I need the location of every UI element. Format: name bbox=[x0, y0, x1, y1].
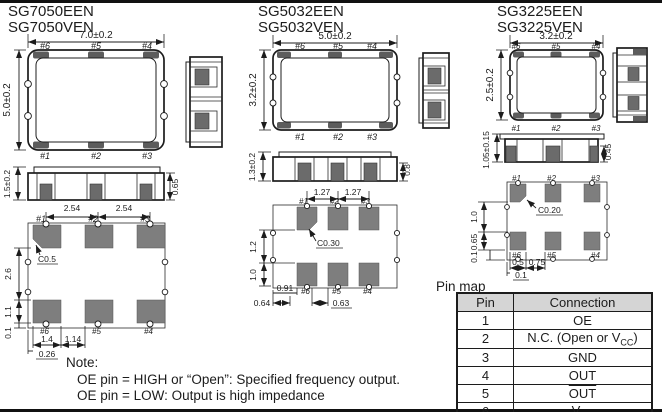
pin-cell: 3 bbox=[457, 348, 514, 366]
pin-cell: 5 bbox=[457, 384, 514, 402]
table-row: 6 VCC bbox=[457, 402, 652, 412]
sg7050-land-pattern: 2.54 2.54 #1 #2 #3 C0.5 2.6 1.1 0 bbox=[3, 203, 168, 359]
pad-label: #2 bbox=[333, 132, 343, 142]
pin-cell: 1 bbox=[457, 312, 514, 330]
pad-label: #5 bbox=[547, 251, 556, 260]
sg7050-front-view: 1.5±0.2 0.65 bbox=[2, 167, 180, 200]
dim-bottom: 0.63 bbox=[333, 298, 350, 308]
dim-pad-height: 0.45 bbox=[603, 143, 613, 160]
dim-left: 1.0 bbox=[248, 269, 258, 281]
pin-cell: 6 bbox=[457, 402, 514, 412]
dim-seated-height: 1.05±0.15 bbox=[481, 131, 491, 169]
sg3225-top-view: 3.2±0.2 #6 #5 #4 #1 #2 #3 2.5±0.2 bbox=[485, 31, 606, 133]
pin-map-table: Pin Connection 1 OE 2 N.C. (Open or VCC)… bbox=[456, 292, 653, 412]
sg5032-land-pattern: 1.27 1.27 #1 #2 #3 C0.30 1.2 1.0 #6 bbox=[248, 187, 400, 308]
pad-label: #1 bbox=[40, 151, 50, 161]
dim-height: 3.2±0.2 bbox=[248, 73, 259, 107]
table-row: 4 OUT bbox=[457, 366, 652, 384]
connection-cell: OUT bbox=[514, 366, 653, 384]
sg3225-front-view: 1.05±0.15 0.45 bbox=[481, 131, 613, 169]
connection-cell: OUT bbox=[514, 384, 653, 402]
connection-cell: VCC bbox=[514, 402, 653, 412]
pad-label: #3 bbox=[367, 132, 377, 142]
dim-bottom: 1.4 bbox=[41, 334, 53, 344]
table-row: 1 OE bbox=[457, 312, 652, 330]
connection-cell: N.C. (Open or VCC) bbox=[514, 330, 653, 349]
note-label: Note: bbox=[66, 355, 400, 372]
note-line: OE pin = HIGH or “Open”: Specified frequ… bbox=[66, 372, 400, 389]
dim-bottom: 1.14 bbox=[65, 334, 82, 344]
dim-seated-height: 1.5±0.2 bbox=[2, 170, 12, 199]
sg5032-front-view: 1.3±0.2 0.8 bbox=[247, 152, 412, 181]
dim-left: 0.65 bbox=[469, 233, 479, 250]
dim-pitch: 2.54 bbox=[116, 203, 133, 213]
dim-pad-height: 0.65 bbox=[170, 178, 180, 195]
dim-left: 1.0 bbox=[469, 211, 479, 223]
dim-pitch: 2.54 bbox=[64, 203, 81, 213]
dim-height: 2.5±0.2 bbox=[485, 68, 496, 102]
dim-bottom: 0.64 bbox=[254, 298, 271, 308]
dim-left: 2.6 bbox=[3, 268, 13, 280]
pad-label: #1 bbox=[295, 132, 305, 142]
table-row: 5 OUT bbox=[457, 384, 652, 402]
pin-cell: 4 bbox=[457, 366, 514, 384]
dim-bottom: 0.26 bbox=[39, 349, 56, 359]
pin-header: Pin bbox=[457, 293, 514, 312]
dim-pad-height: 0.8 bbox=[402, 164, 412, 176]
pad-label: #4 bbox=[363, 287, 372, 296]
sg7050-end-view bbox=[186, 57, 222, 147]
note-line: OE pin = LOW: Output is high impedance bbox=[66, 388, 400, 405]
pad-label: #3 bbox=[142, 151, 152, 161]
sg3225-land-pattern: #1 #2 #3 C0.20 1.0 0.65 0.1 #6 #5 bbox=[469, 174, 609, 280]
pad-label: #4 bbox=[144, 327, 153, 336]
dim-chamfer: C0.30 bbox=[317, 238, 340, 248]
sg5032-top-view: 5.0±0.2 #6 #5 #4 #1 #2 #3 3.2±0.2 bbox=[248, 31, 400, 142]
connection-cell: OE bbox=[514, 312, 653, 330]
pad-label: #5 bbox=[92, 327, 101, 336]
dim-left: 1.1 bbox=[3, 306, 13, 318]
pad-label: #1 bbox=[512, 124, 521, 133]
table-row: 2 N.C. (Open or VCC) bbox=[457, 330, 652, 349]
dim-pitch: 1.27 bbox=[345, 187, 362, 197]
pad-label: #5 bbox=[332, 287, 341, 296]
connection-cell: GND bbox=[514, 348, 653, 366]
dim-left: 0.1 bbox=[3, 327, 13, 339]
dim-bottom: 0.91 bbox=[277, 283, 294, 293]
sg5032-end-view bbox=[419, 53, 449, 128]
note-block: Note: OE pin = HIGH or “Open”: Specified… bbox=[66, 355, 400, 405]
dim-bottom: 0.75 bbox=[529, 257, 546, 267]
table-row: 3 GND bbox=[457, 348, 652, 366]
datasheet-page: SG7050EEN SG7050VEN SG5032EEN SG5032VEN … bbox=[0, 0, 662, 412]
dim-seated-height: 1.3±0.2 bbox=[247, 153, 257, 182]
pad-label: #6 bbox=[301, 287, 310, 296]
dim-chamfer: C0.5 bbox=[38, 254, 56, 264]
pad-label: #2 bbox=[91, 151, 101, 161]
dim-pitch: 1.27 bbox=[314, 187, 331, 197]
dim-width: 7.0±0.2 bbox=[79, 30, 113, 41]
pin-cell: 2 bbox=[457, 330, 514, 349]
pad-label: #2 bbox=[552, 124, 561, 133]
dim-bottom: 0.5 bbox=[512, 257, 524, 267]
dim-height: 5.0±0.2 bbox=[2, 83, 13, 117]
dim-bottom: 0.1 bbox=[515, 270, 527, 280]
dim-left: 1.2 bbox=[248, 241, 258, 253]
connection-header: Connection bbox=[514, 293, 653, 312]
dim-width: 3.2±0.2 bbox=[539, 31, 573, 42]
sg7050-top-view: 7.0±0.2 #6 #5 #4 #1 #2 #3 5.0±0.2 bbox=[2, 30, 167, 161]
pad-label: #3 bbox=[592, 124, 601, 133]
pad-label: #4 bbox=[591, 251, 600, 260]
dim-left: 0.1 bbox=[469, 251, 479, 263]
sg3225-end-view bbox=[613, 48, 647, 122]
pin-map-header-row: Pin Connection bbox=[457, 293, 652, 312]
dim-chamfer: C0.20 bbox=[538, 205, 561, 215]
